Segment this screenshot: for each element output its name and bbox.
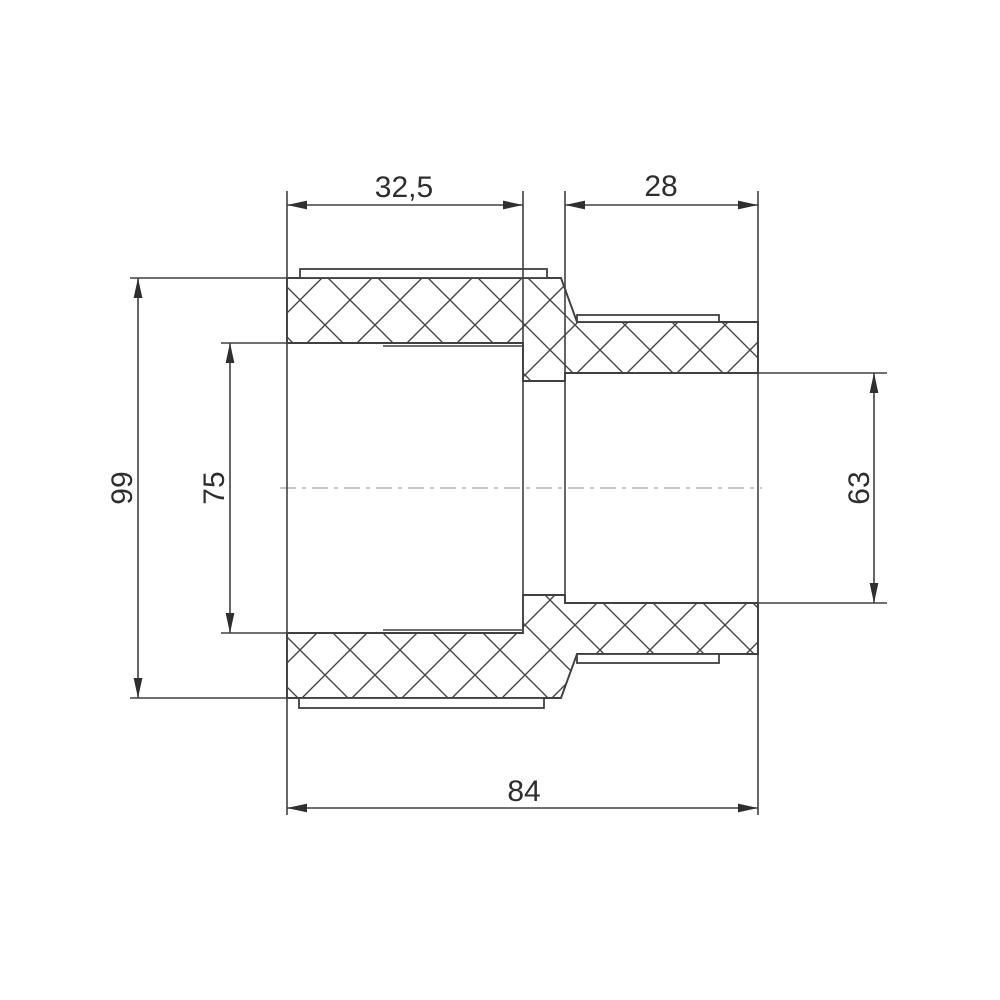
technical-drawing: 32,5 28 99 75 63 <box>0 0 1000 1000</box>
dimension-socket-left-depth: 32,5 <box>287 171 523 209</box>
drawing-page: 32,5 28 99 75 63 <box>0 0 1000 1000</box>
dimension-socket-right-depth: 28 <box>565 170 758 209</box>
dimension-overall-length: 84 <box>287 775 758 812</box>
arrowhead-up-icon <box>134 278 143 298</box>
dim-label-32-5: 32,5 <box>375 171 433 204</box>
arrowhead-right-icon <box>738 201 758 210</box>
arrowhead-up-icon <box>226 343 235 363</box>
arrowhead-left-icon <box>287 201 307 210</box>
dimension-bore-left: 75 <box>198 343 234 633</box>
dim-label-99: 99 <box>106 471 139 504</box>
arrowhead-left-icon <box>287 804 307 813</box>
arrowhead-up-icon <box>870 373 879 393</box>
dimension-bore-right: 63 <box>843 373 878 603</box>
arrowhead-right-icon <box>738 804 758 813</box>
right-socket-bottom-lip <box>577 654 719 663</box>
dim-label-84: 84 <box>507 775 540 808</box>
right-socket-top-lip <box>577 315 719 322</box>
arrowhead-down-icon <box>870 583 879 603</box>
left-socket-top-lip <box>300 269 547 278</box>
dim-label-63: 63 <box>843 471 876 504</box>
arrowhead-right-icon <box>503 201 523 210</box>
dim-label-75: 75 <box>198 471 231 504</box>
arrowhead-down-icon <box>226 613 235 633</box>
dim-label-28: 28 <box>644 170 677 203</box>
arrowhead-down-icon <box>134 678 143 698</box>
dimension-outer-diameter-left: 99 <box>106 278 142 698</box>
arrowhead-left-icon <box>565 201 585 210</box>
lower-wall-section <box>287 595 758 698</box>
left-socket-bottom-lip <box>299 698 544 708</box>
